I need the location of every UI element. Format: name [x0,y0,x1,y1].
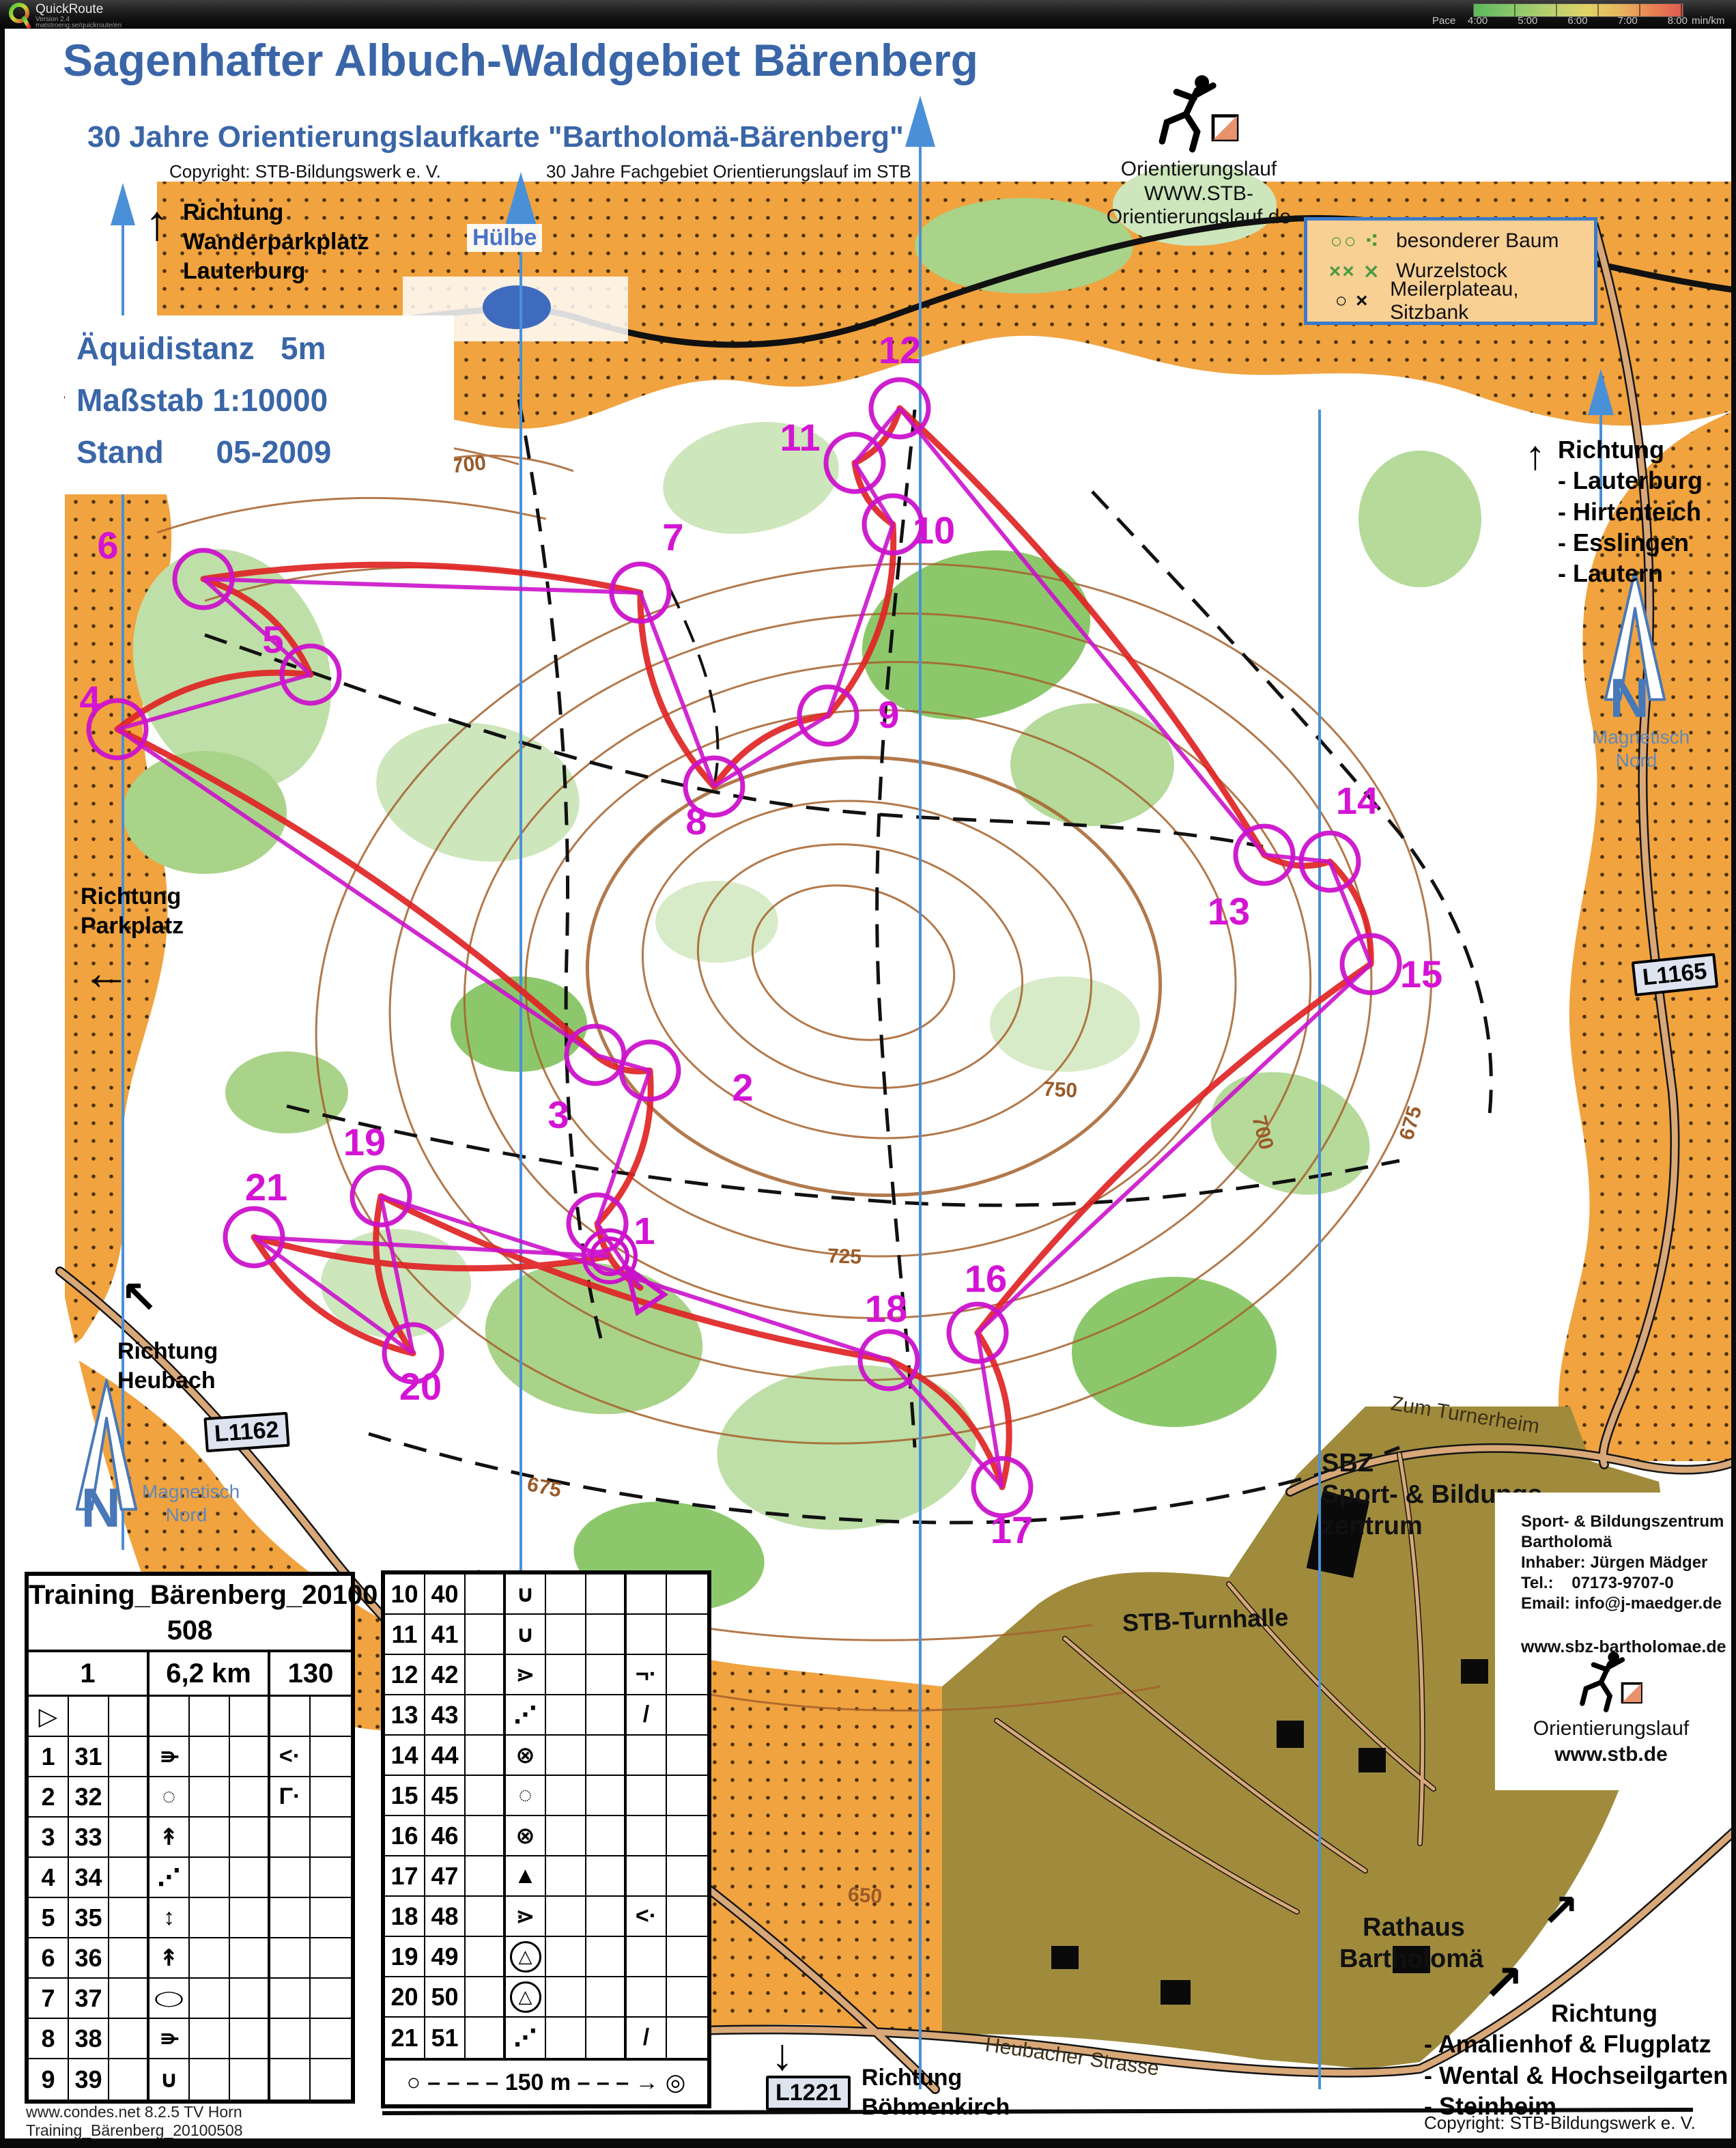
control-feature-symbol: ◌ [518,1782,532,1809]
legend-label: Meilerplateau, Sitzbank [1390,278,1587,324]
card-cell: ◯ [150,1979,190,2019]
course-file-name: Training_Bärenberg_20100508 [26,2121,243,2140]
card-cell: 43 [425,1695,466,1736]
card-cell: 50 [425,1977,466,2018]
control-detail-symbol: ¬· [636,1661,657,1688]
card-cell [230,1938,270,1979]
card-cell [586,2018,627,2058]
card-cell [190,2019,230,2059]
card-row: 434⋰ [29,1858,351,1898]
map-label: 725 [827,1245,862,1269]
control-feature-symbol: ⋔ [156,1747,183,1766]
card-cell [466,2018,506,2058]
card-cell: 2 [29,1777,69,1818]
card-cell [627,1574,667,1615]
card-cell: / [627,1695,667,1736]
control-feature-symbol: ⋗ [515,1661,535,1688]
card-cell [311,1979,351,2019]
card-row: 1343⋰/ [385,1695,707,1736]
card-cell [311,1697,351,1737]
card-cell [230,1858,270,1898]
control-feature-symbol: △ [510,1941,541,1973]
card-cell: 35 [69,1898,109,1938]
card-row: 1646⊗ [385,1816,707,1856]
card-cell: ⊗ [506,1816,546,1856]
card-cell: ▷ [29,1697,69,1737]
control-number: 16 [965,1257,1007,1300]
direction-arrow-icon: ↓ [771,2029,793,2080]
card-cell: 15 [385,1776,425,1816]
card-cell: ⋰ [506,2018,546,2058]
card-cell [466,1655,506,1695]
card-cell [667,1816,707,1856]
direction-line: Richtung [862,2063,1010,2093]
card-cell [546,1736,586,1776]
card-cell [230,1979,270,2019]
card-cell [546,1816,586,1856]
card-cell [270,1697,311,1737]
card-cell [190,1858,230,1898]
control-feature-symbol: ⋰ [158,1864,181,1891]
card-cell [270,2059,311,2100]
control-number: 10 [913,509,955,552]
runner-icon [1151,72,1247,153]
card-cell: 40 [425,1574,466,1615]
pace-tick: 4:00 [1468,15,1488,27]
card-cell [627,1816,667,1856]
card-cell [667,1574,707,1615]
card-row: 1747▲ [385,1856,707,1897]
course-length: 6,2 km [150,1652,270,1695]
control-feature-symbol: ⋗ [515,1903,535,1930]
card-cell [109,1898,150,1938]
control-number: 6 [97,524,118,567]
control-feature-symbol: △ [510,1981,541,2013]
card-cell [667,1736,707,1776]
control-card-left: Training_Bärenberg_20100 508 1 6,2 km 13… [25,1572,355,2104]
direction-line: Richtung [1558,434,1703,465]
map-label: Bartholomä [1339,1945,1483,1974]
card-cell [586,1856,627,1897]
control-feature-symbol: ⋰ [514,2024,537,2052]
card-cell: 47 [425,1856,466,1897]
pace-tick: 6:00 [1567,15,1587,27]
logo-caption: Orientierungslauf [1509,1717,1713,1740]
direction-line: Heubach [117,1366,218,1396]
control-feature-symbol: ◯ [154,1990,184,2007]
direction-arrow-icon: ← [82,945,131,1001]
logo-url: WWW.STB-Orientierungslauf.de [1083,182,1315,229]
card-cell [667,1776,707,1816]
card-row: 838⋔ [29,2019,351,2059]
window-right-edge [1731,0,1736,2148]
card-cell [546,1856,586,1897]
control-detail-symbol: Γ· [279,1783,301,1810]
direction-line: - Lauterburg [1558,465,1703,496]
card-cell [466,1736,506,1776]
window-left-edge [0,0,5,2148]
north-caption: Magnetisch [142,1480,231,1503]
map-label: STB-Turnhalle [1122,1603,1289,1637]
card-cell: ↟ [150,1818,190,1858]
control-feature-symbol: ↟ [159,1945,179,1972]
card-row: 232◌Γ· [29,1777,351,1818]
card-cell: ⋰ [506,1695,546,1736]
card-cell: 9 [29,2059,69,2100]
card-cell: 49 [425,1937,466,1977]
huelbe-pond [483,285,551,329]
scale-distance: – – – – 150 m – – – → [427,2069,658,2096]
direction-line: Lauterburg [183,257,369,286]
card-cell: 11 [385,1615,425,1655]
card-cell: 41 [425,1615,466,1655]
control-number: 4 [79,678,100,721]
card-cell: 10 [385,1574,425,1615]
card-cell [667,1695,707,1736]
card-cell [230,1697,270,1737]
card-cell: ⋔ [150,1737,190,1777]
card-cell: 7 [29,1979,69,2019]
card-row: 1545◌ [385,1776,707,1816]
card-cell [627,1856,667,1897]
card-row: 2151⋰/ [385,2018,707,2058]
card-cell [230,1777,270,1818]
card-row: 939∪ [29,2059,351,2100]
card-cell [586,1574,627,1615]
start-circle-glyph: ○ [407,2069,421,2096]
app-url: matstroeng.se/quickroute/en [35,23,122,29]
pace-tick: 7:00 [1618,15,1638,27]
runner-icon [1574,1650,1649,1712]
card-cell [546,1574,586,1615]
direction-line: Richtung [183,198,369,227]
card-cell: 5 [29,1898,69,1938]
map-label: 700 [451,451,487,478]
pace-tick: 5:00 [1518,15,1537,27]
logo-url: www.stb.de [1509,1743,1713,1766]
map-legend-box: ○○ ⁖besonderer Baum×× ⨯Wurzelstock○ ×Mei… [1304,217,1597,325]
direction-line: - Lautern [1558,558,1703,589]
control-feature-symbol: ▲ [514,1863,537,1889]
north-arrow-icon: N [74,1378,142,1532]
control-number: 14 [1336,779,1378,822]
card-cell [466,1937,506,1977]
control-number: 1 [634,1209,655,1252]
course-number: 1 [29,1652,150,1695]
card-cell [311,1777,351,1818]
card-cell [190,1979,230,2019]
card-cell [109,1777,150,1818]
direction-line: - Steinheim [1424,2091,1728,2121]
pace-label: Pace [1432,15,1455,27]
card-cell: 12 [385,1655,425,1695]
control-number: 3 [547,1093,569,1136]
card-cell [190,1697,230,1737]
card-cell [667,1897,707,1937]
finish-circle-glyph: ◎ [666,2069,686,2096]
card-cell [270,2019,311,2059]
control-number: 12 [879,328,921,371]
direction-arrow-icon: ↖ [120,1271,158,1324]
card-cell [311,1898,351,1938]
card-cell: ∪ [506,1615,546,1655]
card-cell [627,1937,667,1977]
map-info-block: Äquidistanz 5m Maßstab 1:10000 Stand 05-… [76,322,331,478]
north-caption: Nord [142,1503,231,1527]
sbz-info-line: Sport- & Bildungszentrum [1521,1512,1736,1532]
control-feature-symbol: ⊗ [515,1742,535,1769]
control-number: 2 [732,1066,753,1109]
legend-label: besonderer Baum [1396,229,1559,253]
control-detail-symbol: / [643,1701,649,1728]
card-cell: 34 [69,1858,109,1898]
card-cell [546,2018,586,2058]
card-cell [109,1737,150,1777]
card-cell [270,1898,311,1938]
legend-symbol-icon: ○○ ⁖ [1314,229,1396,253]
card-cell [546,1977,586,2018]
control-detail-symbol: / [643,2024,649,2051]
stb-logo-bottom: Orientierungslauf www.stb.de [1509,1650,1713,1766]
card-cell [109,1979,150,2019]
card-cell: 45 [425,1776,466,1816]
quickroute-logo-icon [7,1,34,29]
control-feature-symbol: ∪ [516,1621,535,1648]
quickroute-window: 123456789101112131415161718192021 QuickR… [0,0,1736,2148]
card-cell [546,1937,586,1977]
card-cell: ◌ [150,1777,190,1818]
direction-label: RichtungHeubach [117,1337,218,1396]
direction-line: - Esslingen [1558,527,1703,558]
card-row: 1848⋗<· [385,1897,707,1937]
card-cell: 31 [69,1737,109,1777]
logo-caption: Orientierungslauf [1083,158,1315,181]
card-cell [586,1776,627,1816]
control-feature-symbol: ∪ [160,2066,179,2093]
card-cell: 3 [29,1818,69,1858]
card-cell [667,1856,707,1897]
card-cell: 20 [385,1977,425,2018]
control-detail-symbol: <· [279,1743,300,1770]
card-cell: ⊗ [506,1736,546,1776]
course-climb: 130 [270,1652,351,1695]
card-cell: 44 [425,1736,466,1776]
card-cell [230,1818,270,1858]
card-cell [586,1655,627,1695]
card-cell: △ [506,1977,546,2018]
direction-line: Böhmenkirch [862,2093,1010,2122]
card-cell: 6 [29,1938,69,1979]
legend-item: ○ ×Meilerplateau, Sitzbank [1314,286,1587,316]
map-title: Sagenhafter Albuch-Waldgebiet Bärenberg [63,34,978,86]
card-row: 1242⋗¬· [385,1655,707,1695]
card-cell [311,1858,351,1898]
card-cell [466,1615,506,1655]
card-cell [230,2019,270,2059]
card-cell: <· [270,1737,311,1777]
card-cell [190,1938,230,1979]
card-cell [109,1938,150,1979]
sbz-info-line: Inhaber: Jürgen Mädger [1521,1553,1736,1573]
control-feature-symbol: ◌ [162,1783,175,1810]
card-cell [230,1898,270,1938]
card-cell: ▲ [506,1856,546,1897]
road-sign-l1221: L1221 [766,2076,851,2110]
card-cell [109,2019,150,2059]
direction-line: - Wental & Hochseilgarten [1424,2060,1728,2091]
card-row: 535↕ [29,1898,351,1938]
card-row: ▷ [29,1697,351,1737]
card-cell [627,1615,667,1655]
card-cell [109,1697,150,1737]
direction-line: Richtung [81,882,184,912]
legend-symbol-icon: ×× ⨯ [1314,259,1396,283]
card-cell: 42 [425,1655,466,1695]
legend-symbol-icon: ○ × [1314,289,1390,313]
card-row: 2050△ [385,1977,707,2018]
card-cell [586,1937,627,1977]
card-cell [586,1695,627,1736]
direction-label: RichtungWanderparkplatzLauterburg [183,198,369,285]
map-label: Rathaus [1363,1913,1465,1942]
card-cell: ∪ [150,2059,190,2100]
card-cell [546,1655,586,1695]
card-cell: ◌ [506,1776,546,1816]
card-cell [190,2059,230,2100]
control-detail-symbol: <· [636,1903,657,1930]
copyright-center: 30 Jahre Fachgebiet Orientierungslauf im… [546,161,911,182]
direction-label: Richtung- Lauterburg- Hirtenteich- Essli… [1558,434,1703,589]
card-cell [466,1574,506,1615]
card-cell [466,1977,506,2018]
north-caption: Magnetisch [1592,726,1681,749]
control-number: 8 [685,800,707,843]
card-cell: 17 [385,1856,425,1897]
card-cell [270,1818,311,1858]
card-cell: ↟ [150,1938,190,1979]
direction-line: - Amalienhof & Flugplatz [1424,2029,1728,2059]
card-cell: ⋗ [506,1655,546,1695]
card-row: 131⋔<· [29,1737,351,1777]
card-cell [627,1776,667,1816]
sbz-info-line: Tel.: 07173-9707-0 [1521,1573,1736,1594]
control-number: 7 [662,515,683,559]
card-cell: ∪ [506,1574,546,1615]
card-cell [466,1695,506,1736]
card-cell: ↕ [150,1898,190,1938]
huelbe-label: Hülbe [467,224,542,252]
pace-unit: min/km [1692,15,1724,27]
card-cell [311,1818,351,1858]
sbz-info-line: Bartholomä [1521,1532,1736,1553]
card-cell [546,1695,586,1736]
card-cell [466,1897,506,1937]
control-feature-symbol: ↟ [159,1824,179,1851]
condes-footer: www.condes.net 8.2.5 TV Horn [26,2103,243,2121]
control-feature-symbol: ⋔ [156,2029,183,2048]
card-cell: 18 [385,1897,425,1937]
control-number: 18 [865,1287,907,1330]
window-bottom-strip [0,2138,1736,2148]
card-cell [311,1938,351,1979]
map-label: zentrum [1322,1512,1423,1541]
direction-line: Wanderparkplatz [183,227,369,257]
control-feature-symbol: ∪ [516,1581,535,1608]
card-cell [270,1979,311,2019]
direction-line: Richtung [1551,1998,1728,2029]
pace-ticks: 4:005:006:007:008:00 [1468,15,1688,27]
card-row: 636↟ [29,1938,351,1979]
card-cell: 14 [385,1736,425,1776]
control-number: 13 [1208,890,1250,933]
control-number: 15 [1400,952,1442,995]
direction-label: Richtung- Amalienhof & Flugplatz- Wental… [1424,1998,1728,2121]
copyright-left: Copyright: STB-Bildungswerk e. V. [169,161,441,182]
card-cell [546,1897,586,1937]
card-cell: △ [506,1937,546,1977]
card-cell: 21 [385,2018,425,2058]
app-title: QuickRoute [35,2,103,17]
card-cell [69,1697,109,1737]
map-subtitle: 30 Jahre Orientierungslaufkarte "Barthol… [87,120,904,154]
direction-arrow-icon: ↑ [145,195,169,251]
card-cell: <· [627,1897,667,1937]
control-number: 5 [262,618,283,661]
card-cell [667,1937,707,1977]
card-cell: 37 [69,1979,109,2019]
card-cell [270,1858,311,1898]
card-cell: / [627,2018,667,2058]
card-cell [190,1737,230,1777]
control-number: 17 [991,1508,1033,1551]
card-cell: 33 [69,1818,109,1858]
card-row: 1949△ [385,1937,707,1977]
card-cell [311,2019,351,2059]
north-caption: Nord [1592,749,1681,772]
control-card-right: 1040∪1141∪1242⋗¬·1343⋰/1444⊗1545◌1646⊗17… [381,1570,711,2108]
card-cell [190,1818,230,1858]
pace-tick: 8:00 [1668,15,1688,27]
card-cell: ⋰ [150,1858,190,1898]
card-cell [190,1777,230,1818]
card-cell [311,1737,351,1777]
svg-text:N: N [1610,668,1649,722]
card-cell [109,1818,150,1858]
card-row: 1444⊗ [385,1736,707,1776]
card-cell [466,1816,506,1856]
card-cell [190,1898,230,1938]
road-sign-l1162: L1162 [203,1412,289,1452]
card-cell: 36 [69,1938,109,1979]
direction-arrow-icon: ↗ [1483,1954,1524,2011]
card-cell [466,1856,506,1897]
card-cell: 32 [69,1777,109,1818]
card-scale-row: ○ – – – – 150 m – – – → ◎ [385,2058,707,2104]
direction-label: RichtungParkplatz [81,882,184,941]
card-cell [230,2059,270,2100]
card-row: 737◯ [29,1979,351,2019]
direction-arrow-icon: ↑ [1525,432,1546,479]
control-number: 19 [343,1120,386,1163]
card-cell [466,1776,506,1816]
direction-line: - Hirtenteich [1558,496,1703,527]
card-cell [667,1655,707,1695]
magnetic-north-right: N Magnetisch Nord [1592,568,1681,772]
card-row: 333↟ [29,1818,351,1858]
card-cell: 19 [385,1937,425,1977]
control-number: 21 [245,1165,287,1209]
card-cell: 13 [385,1695,425,1736]
